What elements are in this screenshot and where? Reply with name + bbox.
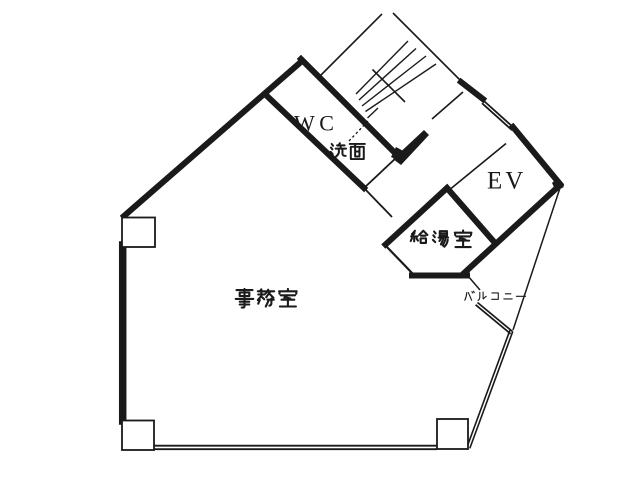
- svg-text:WC: WC: [294, 111, 338, 136]
- svg-text:EV: EV: [487, 168, 526, 195]
